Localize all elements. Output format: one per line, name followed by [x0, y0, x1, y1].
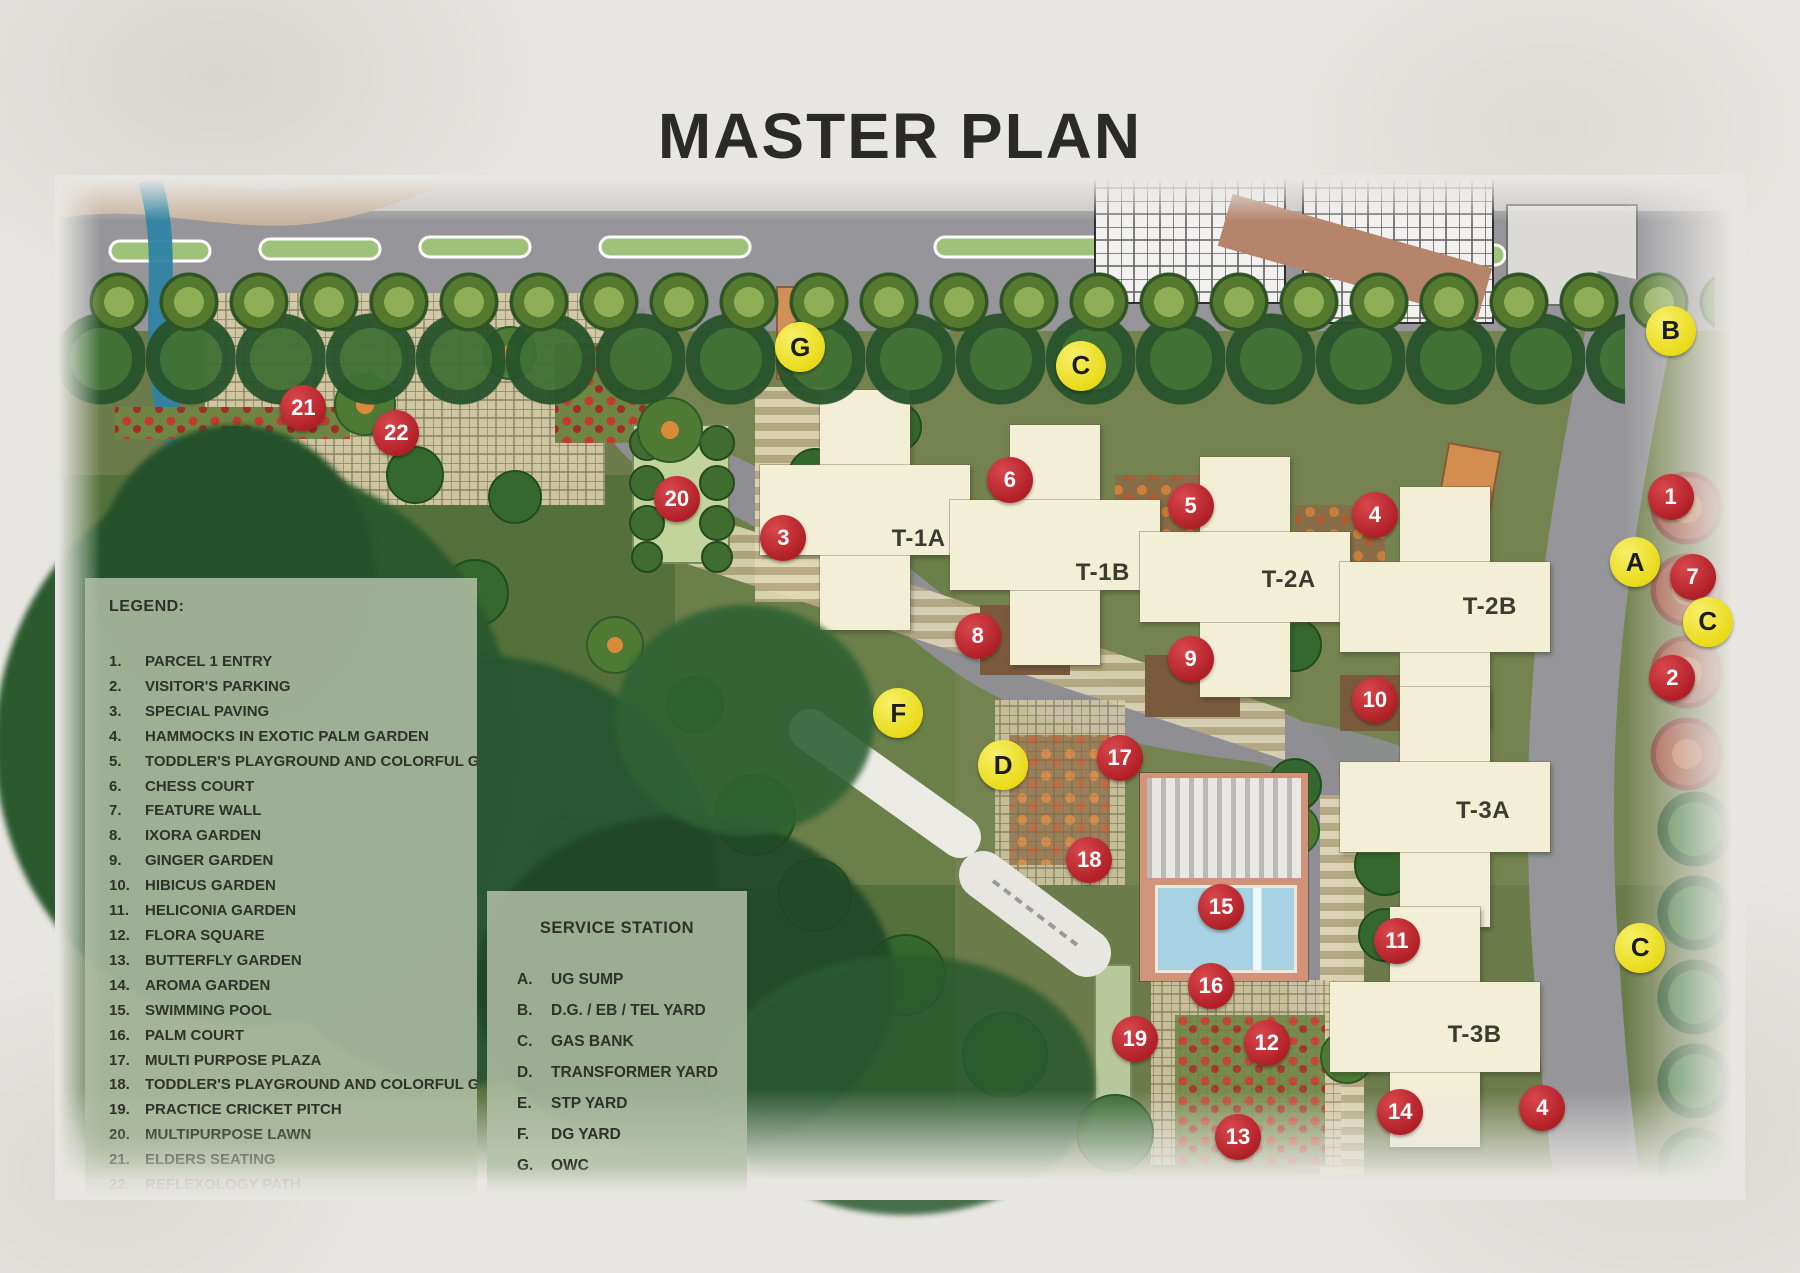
legend-item-number: 3. [109, 700, 145, 725]
legend-item-number: 8. [109, 824, 145, 849]
legend-list: 1. PARCEL 1 ENTRY 2. VISITOR'S PARKING 3… [85, 616, 477, 1198]
legend-item-label: TODDLER'S PLAYGROUND AND COLORFUL GARDEN [145, 750, 533, 775]
page-title: MASTER PLAN [0, 99, 1800, 173]
map-marker-yellow: D [978, 740, 1028, 790]
service-item-key: E. [517, 1088, 551, 1119]
legend-item: 14. AROMA GARDEN [109, 974, 467, 999]
map-marker-yellow: C [1683, 597, 1733, 647]
legend-item-label: ELDERS SEATING [145, 1148, 276, 1173]
service-item-label: TRANSFORMER YARD [551, 1057, 718, 1088]
service-station-item: A. UG SUMP [517, 964, 737, 995]
service-station-item: C. GAS BANK [517, 1026, 737, 1057]
service-item-key: D. [517, 1057, 551, 1088]
legend-item: 3. SPECIAL PAVING [109, 700, 467, 725]
service-station-item: D. TRANSFORMER YARD [517, 1057, 737, 1088]
master-plan-page: { "title": "MASTER PLAN", "legend": { "h… [0, 0, 1800, 1273]
legend-item: 13. BUTTERFLY GARDEN [109, 949, 467, 974]
legend-item: 22. REFLEXOLOGY PATH [109, 1173, 467, 1198]
legend-item: 21. ELDERS SEATING [109, 1148, 467, 1173]
service-item-label: D.G. / EB / TEL YARD [551, 995, 706, 1026]
legend-item-label: MULTIPURPOSE LAWN [145, 1123, 311, 1148]
service-station-panel: SERVICE STATION A. UG SUMP B. D.G. / EB … [487, 891, 747, 1193]
map-marker-yellow: F [873, 688, 923, 738]
legend-item-number: 20. [109, 1123, 145, 1148]
service-item-label: STP YARD [551, 1088, 627, 1119]
legend-item-label: BUTTERFLY GARDEN [145, 949, 302, 974]
legend-item: 8. IXORA GARDEN [109, 824, 467, 849]
legend-item: 7. FEATURE WALL [109, 799, 467, 824]
legend-panel: LEGEND: 1. PARCEL 1 ENTRY 2. VISITOR'S P… [85, 578, 477, 1198]
legend-heading: LEGEND: [85, 578, 477, 616]
legend-item-number: 10. [109, 874, 145, 899]
legend-item-label: HELICONIA GARDEN [145, 899, 296, 924]
legend-item-label: FLORA SQUARE [145, 924, 264, 949]
map-marker-yellow: C [1615, 923, 1665, 973]
legend-item-label: SWIMMING POOL [145, 999, 272, 1024]
legend-item-number: 5. [109, 750, 145, 775]
legend-item-label: GINGER GARDEN [145, 849, 273, 874]
legend-item: 19. PRACTICE CRICKET PITCH [109, 1098, 467, 1123]
map-marker-yellow: G [775, 322, 825, 372]
service-item-label: OWC [551, 1150, 589, 1181]
service-station-list: A. UG SUMP B. D.G. / EB / TEL YARD C. GA… [487, 938, 747, 1181]
legend-item: 18. TODDLER'S PLAYGROUND AND COLORFUL GA… [109, 1073, 467, 1098]
legend-item-number: 11. [109, 899, 145, 924]
legend-item: 11. HELICONIA GARDEN [109, 899, 467, 924]
legend-item-label: PARCEL 1 ENTRY [145, 650, 272, 675]
legend-item-number: 4. [109, 725, 145, 750]
legend-item-number: 21. [109, 1148, 145, 1173]
map-marker-yellow: B [1646, 306, 1696, 356]
service-item-key: C. [517, 1026, 551, 1057]
legend-item-label: AROMA GARDEN [145, 974, 270, 999]
legend-item-number: 19. [109, 1098, 145, 1123]
legend-item: 15. SWIMMING POOL [109, 999, 467, 1024]
legend-item-label: CHESS COURT [145, 775, 254, 800]
legend-item-label: SPECIAL PAVING [145, 700, 269, 725]
legend-item-number: 12. [109, 924, 145, 949]
service-station-item: G. OWC [517, 1150, 737, 1181]
legend-item-number: 14. [109, 974, 145, 999]
legend-item-number: 13. [109, 949, 145, 974]
legend-item: 5. TODDLER'S PLAYGROUND AND COLORFUL GAR… [109, 750, 467, 775]
legend-item-number: 6. [109, 775, 145, 800]
legend-item: 4. HAMMOCKS IN EXOTIC PALM GARDEN [109, 725, 467, 750]
legend-item: 12. FLORA SQUARE [109, 924, 467, 949]
legend-item-number: 7. [109, 799, 145, 824]
legend-item: 9. GINGER GARDEN [109, 849, 467, 874]
legend-item-label: REFLEXOLOGY PATH [145, 1173, 301, 1198]
legend-item-number: 17. [109, 1049, 145, 1074]
service-item-label: UG SUMP [551, 964, 623, 995]
service-item-label: DG YARD [551, 1119, 621, 1150]
map-marker-yellow: A [1610, 537, 1660, 587]
legend-item-label: HAMMOCKS IN EXOTIC PALM GARDEN [145, 725, 429, 750]
legend-item-label: PALM COURT [145, 1024, 244, 1049]
legend-item-number: 22. [109, 1173, 145, 1198]
legend-item-label: MULTI PURPOSE PLAZA [145, 1049, 321, 1074]
legend-item: 17. MULTI PURPOSE PLAZA [109, 1049, 467, 1074]
legend-item-number: 18. [109, 1073, 145, 1098]
service-item-key: B. [517, 995, 551, 1026]
legend-item: 2. VISITOR'S PARKING [109, 675, 467, 700]
legend-item: 6. CHESS COURT [109, 775, 467, 800]
service-station-heading: SERVICE STATION [487, 891, 747, 938]
legend-item-label: VISITOR'S PARKING [145, 675, 291, 700]
legend-item-label: IXORA GARDEN [145, 824, 261, 849]
service-station-item: B. D.G. / EB / TEL YARD [517, 995, 737, 1026]
service-item-key: A. [517, 964, 551, 995]
legend-item-number: 2. [109, 675, 145, 700]
legend-item-number: 1. [109, 650, 145, 675]
service-item-key: F. [517, 1119, 551, 1150]
legend-item-label: FEATURE WALL [145, 799, 261, 824]
legend-item-label: TODDLER'S PLAYGROUND AND COLORFUL GARDEN [145, 1073, 533, 1098]
map-marker-yellow: C [1056, 341, 1106, 391]
service-item-key: G. [517, 1150, 551, 1181]
legend-item: 20. MULTIPURPOSE LAWN [109, 1123, 467, 1148]
legend-item: 1. PARCEL 1 ENTRY [109, 650, 467, 675]
legend-item: 16. PALM COURT [109, 1024, 467, 1049]
legend-item-label: PRACTICE CRICKET PITCH [145, 1098, 342, 1123]
legend-item-number: 9. [109, 849, 145, 874]
legend-item: 10. HIBICUS GARDEN [109, 874, 467, 899]
service-item-label: GAS BANK [551, 1026, 634, 1057]
service-station-item: E. STP YARD [517, 1088, 737, 1119]
legend-item-number: 15. [109, 999, 145, 1024]
service-station-item: F. DG YARD [517, 1119, 737, 1150]
legend-item-label: HIBICUS GARDEN [145, 874, 276, 899]
legend-item-number: 16. [109, 1024, 145, 1049]
